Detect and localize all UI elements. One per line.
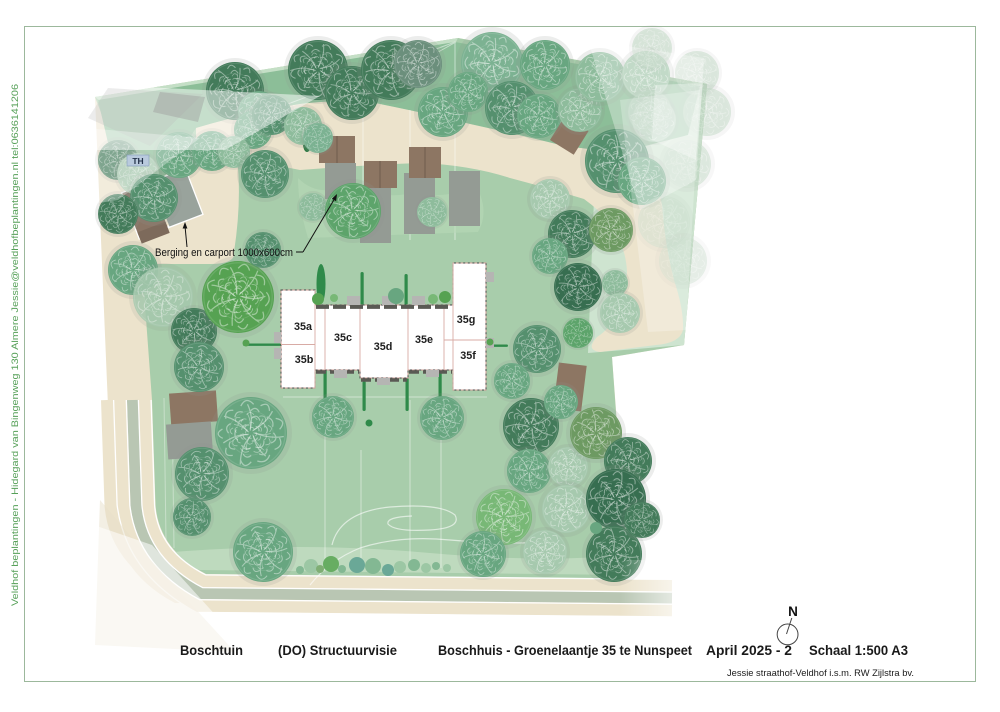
svg-text:35d: 35d <box>374 341 393 353</box>
svg-text:35f: 35f <box>460 350 476 362</box>
svg-text:35b: 35b <box>295 354 314 366</box>
svg-text:35c: 35c <box>334 332 352 344</box>
svg-text:TH: TH <box>132 156 143 166</box>
svg-text:Berging en carport 1000x600cm: Berging en carport 1000x600cm <box>155 247 293 259</box>
svg-text:(DO) Structuurvisie: (DO) Structuurvisie <box>278 643 397 658</box>
svg-text:35e: 35e <box>415 334 433 346</box>
svg-text:Schaal 1:500 A3: Schaal 1:500 A3 <box>809 643 908 658</box>
svg-text:Jessie straathof-Veldhof i.s.m: Jessie straathof-Veldhof i.s.m. RW Zijls… <box>727 668 914 679</box>
svg-text:35a: 35a <box>294 321 313 333</box>
svg-text:Boschhuis - Groenelaantje 35 t: Boschhuis - Groenelaantje 35 te Nunspeet <box>438 643 692 658</box>
svg-text:35g: 35g <box>457 314 476 326</box>
svg-text:Boschtuin: Boschtuin <box>180 643 243 658</box>
svg-text:April 2025 - 2: April 2025 - 2 <box>706 643 792 658</box>
svg-text:Veldhof beplantingen - Hidegar: Veldhof beplantingen - Hidegard van Bing… <box>10 84 21 606</box>
svg-text:N: N <box>788 604 798 619</box>
